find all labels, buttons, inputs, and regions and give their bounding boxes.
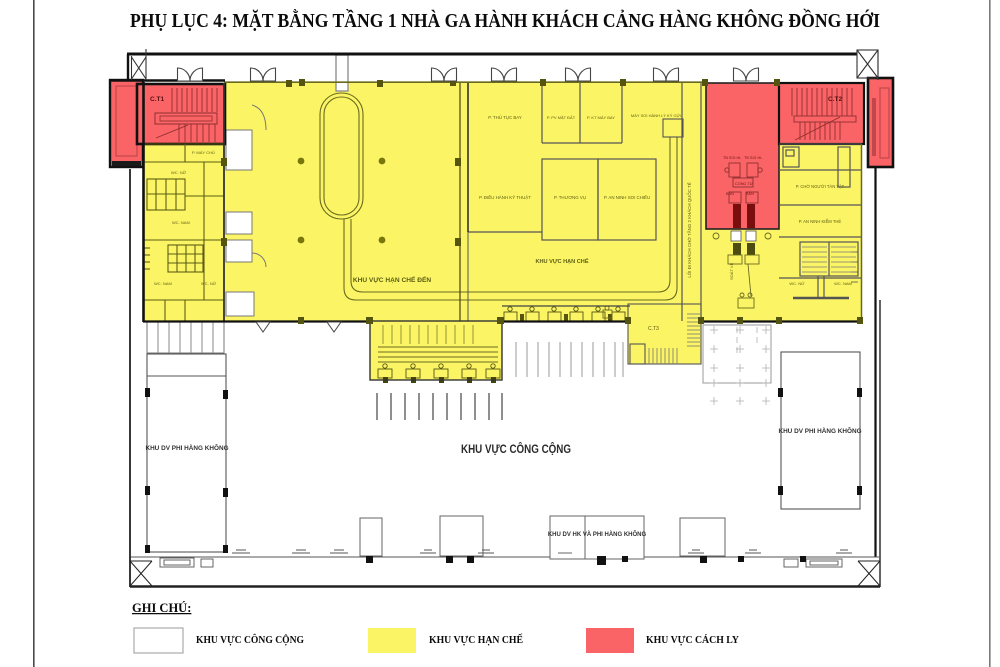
- svg-text:KHU DV PHI HÀNG KHÔNG: KHU DV PHI HÀNG KHÔNG: [778, 426, 861, 435]
- svg-text:P. KT MÁY BAY: P. KT MÁY BAY: [587, 115, 615, 120]
- svg-text:KHU VỰC CÁCH LY: KHU VỰC CÁCH LY: [646, 634, 739, 646]
- svg-text:MÁY SOI HÀNH LÝ KÝ GỬI: MÁY SOI HÀNH LÝ KÝ GỬI: [631, 113, 681, 118]
- svg-text:SOÁT VÉ: SOÁT VÉ: [729, 262, 734, 280]
- svg-text:KHU VỰC CÔNG CỘNG: KHU VỰC CÔNG CỘNG: [196, 633, 304, 646]
- svg-text:KHU VỰC CÔNG CỘNG: KHU VỰC CÔNG CỘNG: [461, 443, 571, 456]
- svg-text:C.T2: C.T2: [828, 96, 842, 103]
- svg-text:C.T1: C.T1: [150, 96, 164, 103]
- svg-text:P. CHỜ NGƯỜI TÀN TẬT: P. CHỜ NGƯỜI TÀN TẬT: [796, 184, 845, 189]
- svg-text:TB SOI HL: TB SOI HL: [723, 156, 741, 160]
- svg-text:P. AN NINH KIỂM THẺ: P. AN NINH KIỂM THẺ: [799, 219, 842, 224]
- svg-text:PHỤ LỤC 4: MẶT BẰNG TẦNG 1 NHÀ: PHỤ LỤC 4: MẶT BẰNG TẦNG 1 NHÀ GA HÀNH K…: [130, 8, 880, 32]
- svg-text:TB SOI HL: TB SOI HL: [744, 156, 762, 160]
- svg-text:P. THƯƠNG VỤ: P. THƯƠNG VỤ: [554, 195, 586, 200]
- svg-text:GHI CHÚ:: GHI CHÚ:: [132, 601, 191, 615]
- svg-text:BÀN: BÀN: [746, 192, 754, 196]
- svg-text:P. MÁY CHỦ: P. MÁY CHỦ: [192, 150, 215, 155]
- svg-text:LỐI ĐI KHÁCH CHỜ TẦNG 2 KHÁCH: LỐI ĐI KHÁCH CHỜ TẦNG 2 KHÁCH QUỐC TẾ: [687, 182, 692, 277]
- svg-text:P. AN NINH SOI CHIẾU: P. AN NINH SOI CHIẾU: [604, 195, 650, 200]
- svg-text:WC. NỮ: WC. NỮ: [789, 281, 805, 286]
- svg-text:KHU VỰC HẠN CHẾ: KHU VỰC HẠN CHẾ: [535, 258, 588, 265]
- svg-text:P. ĐIỀU HÀNH KỸ THUẬT: P. ĐIỀU HÀNH KỸ THUẬT: [479, 195, 531, 200]
- svg-text:KHU VỰC HẠN CHẾ: KHU VỰC HẠN CHẾ: [429, 633, 523, 646]
- svg-text:CỔNG TỪ: CỔNG TỪ: [735, 181, 754, 186]
- svg-text:KHU DV HK VÀ PHI HÀNG KHÔNG: KHU DV HK VÀ PHI HÀNG KHÔNG: [548, 530, 647, 538]
- svg-text:WC. NAM: WC. NAM: [834, 281, 852, 286]
- svg-text:BÀN: BÀN: [726, 192, 734, 196]
- svg-text:P. THỦ TỤC BAY: P. THỦ TỤC BAY: [488, 115, 522, 120]
- svg-text:KHU DV PHI HÀNG KHÔNG: KHU DV PHI HÀNG KHÔNG: [145, 443, 228, 452]
- svg-text:WC. NAM: WC. NAM: [154, 281, 172, 286]
- svg-text:WC. NỮ: WC. NỮ: [171, 170, 187, 175]
- svg-text:P. PV MẶT ĐẤT: P. PV MẶT ĐẤT: [547, 115, 576, 120]
- svg-text:WC. NAM: WC. NAM: [172, 220, 190, 225]
- svg-text:C.T3: C.T3: [648, 326, 659, 332]
- svg-text:WC. NỮ: WC. NỮ: [201, 281, 217, 286]
